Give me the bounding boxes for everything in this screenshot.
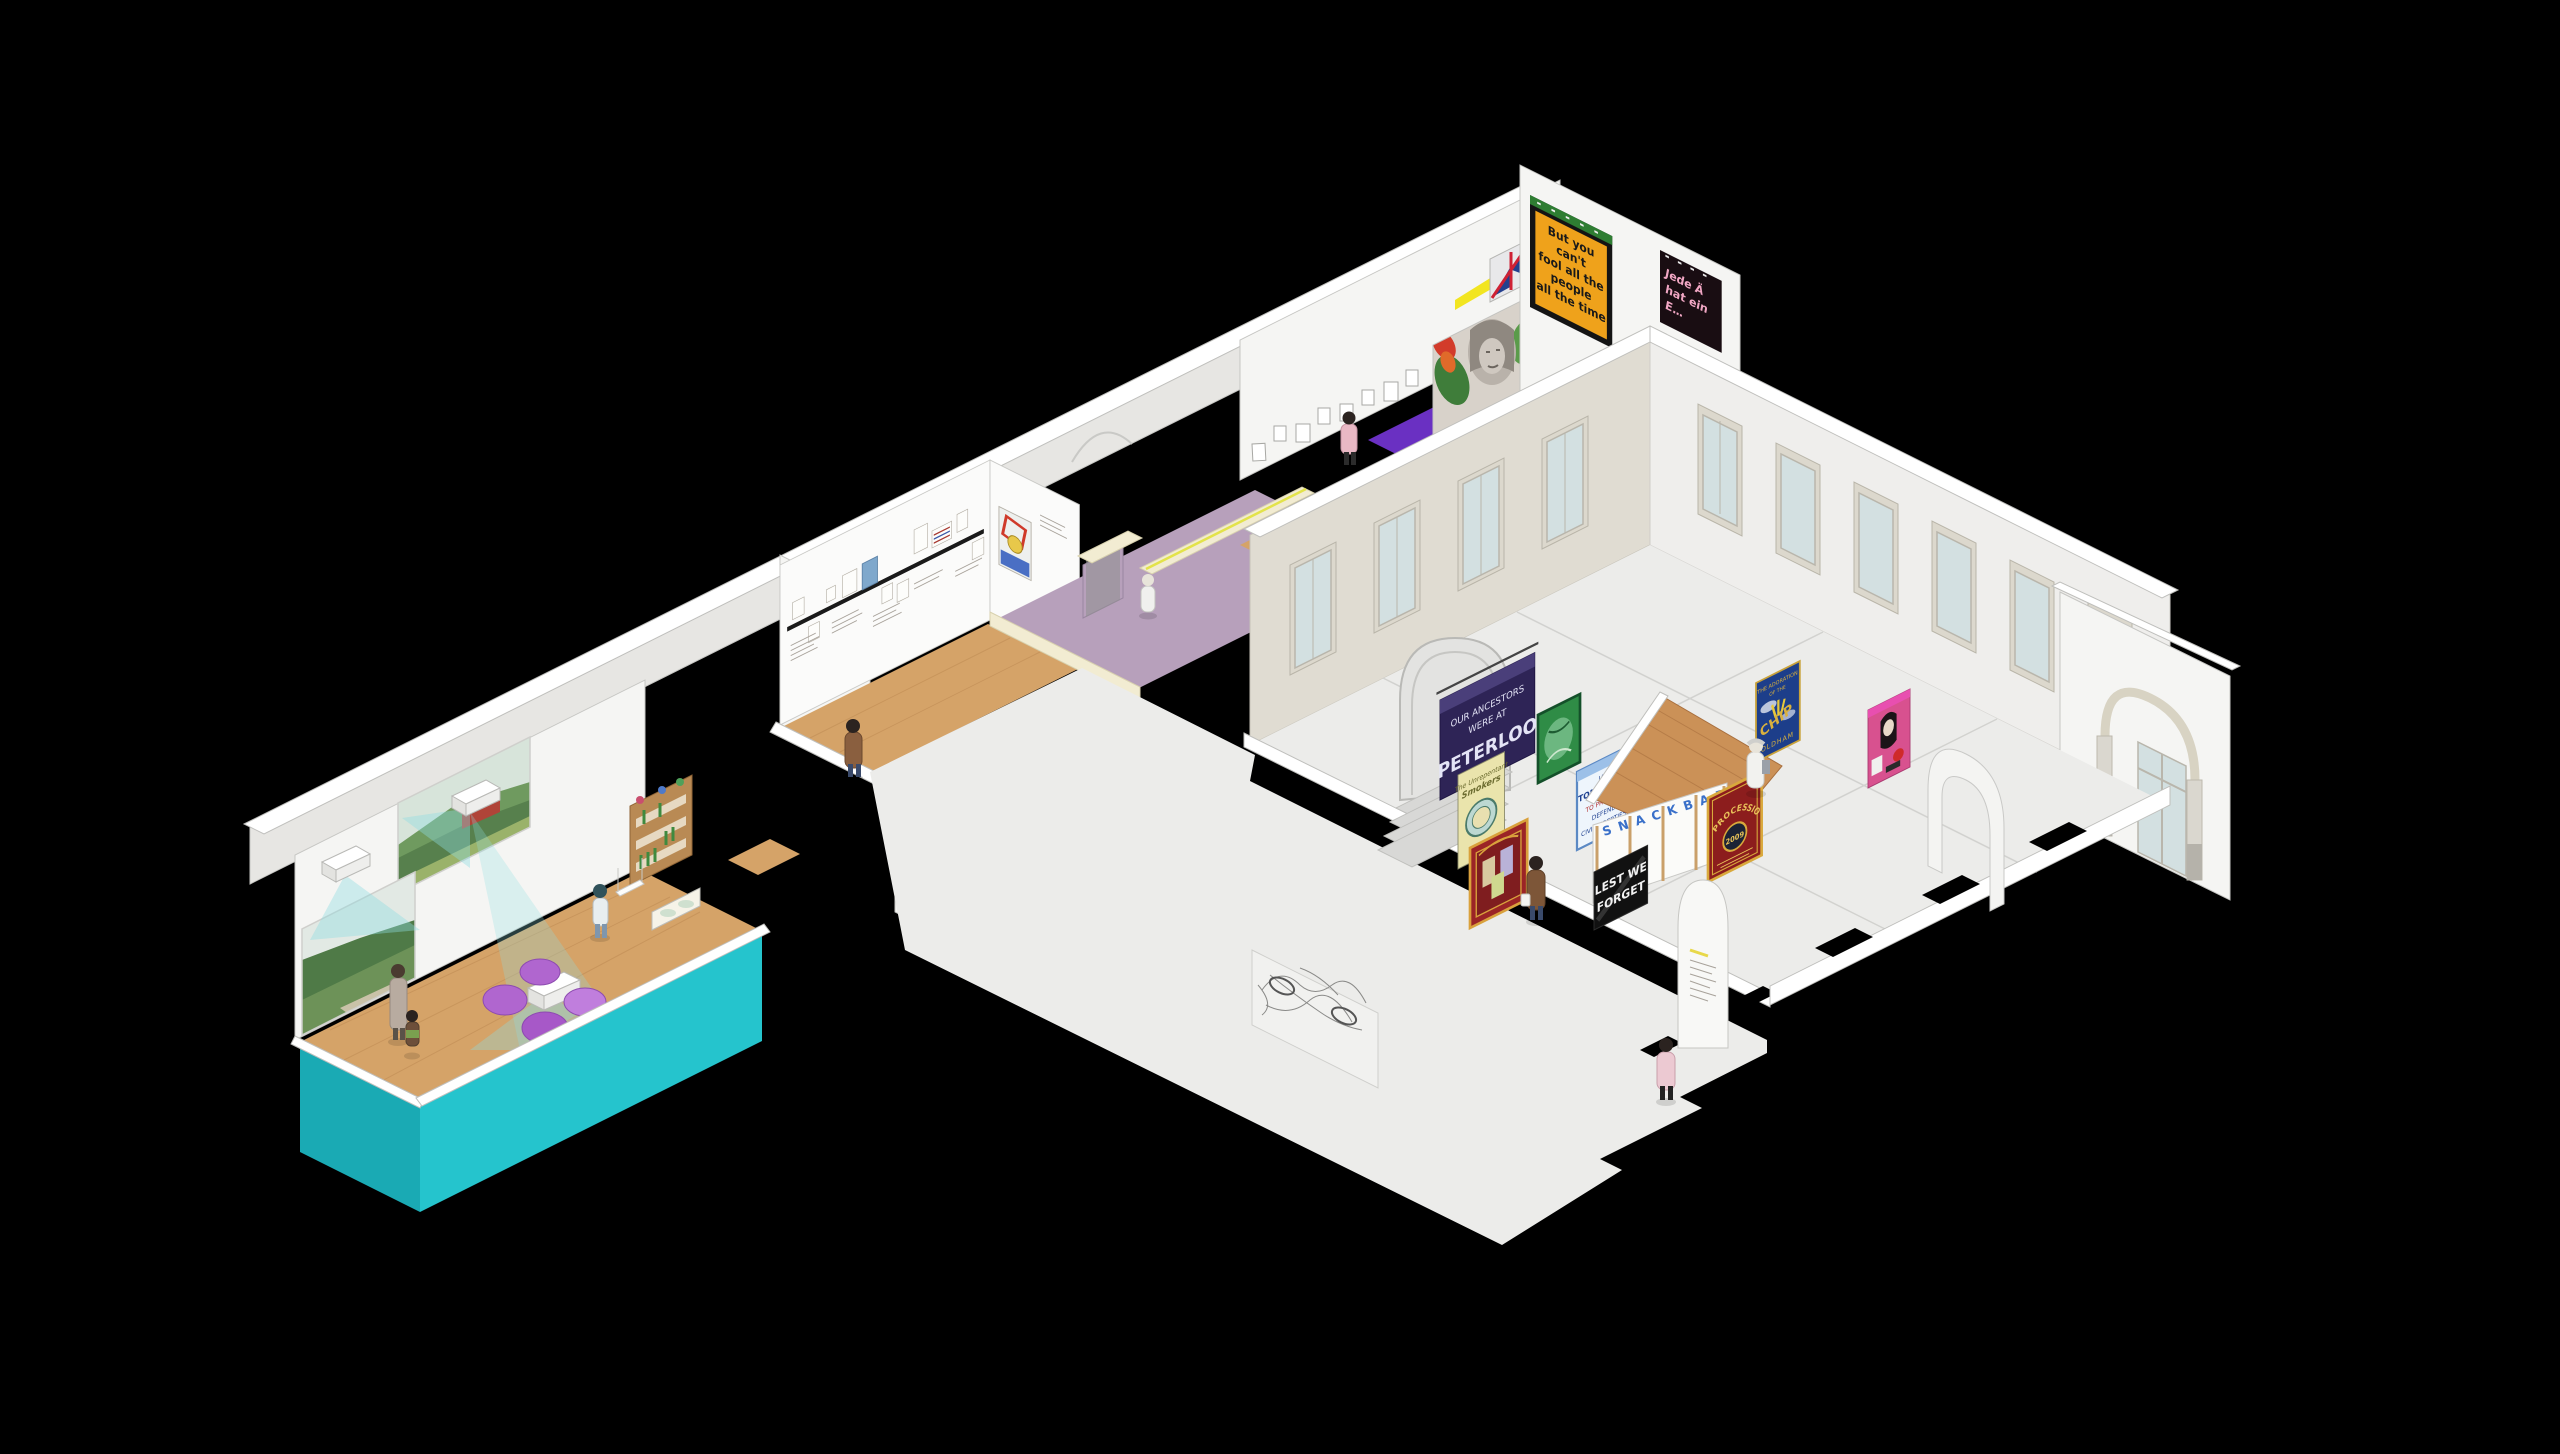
scene-canvas: But you can't fool all the people all th…	[0, 0, 2560, 1454]
info-totem	[1678, 880, 1728, 1048]
shoulder-bag	[1762, 760, 1770, 774]
pilaster-base	[2187, 844, 2202, 880]
isometric-museum-rendering: But you can't fool all the people all th…	[0, 0, 2560, 1454]
